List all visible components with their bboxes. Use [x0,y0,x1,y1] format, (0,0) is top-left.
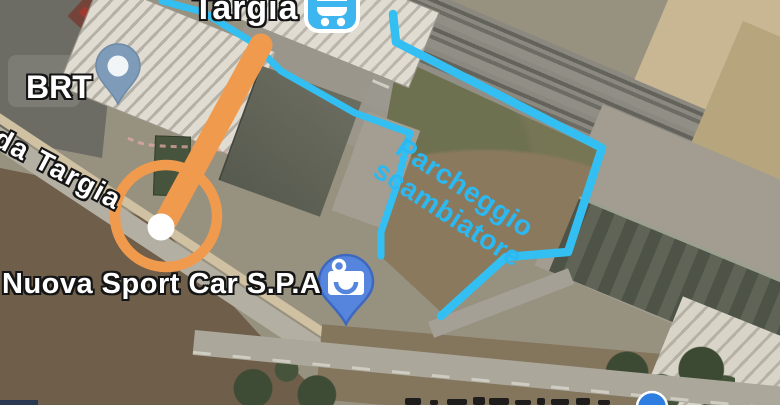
train-wheel [337,18,345,26]
satellite-map[interactable]: Targia BRT ada Targia Parcheggio scambia… [0,0,780,405]
brt-label: BRT [26,69,92,106]
clipped-circle-marker-icon[interactable] [637,392,667,405]
brt-pin-dot [108,56,129,77]
destination-pin-icon[interactable] [319,255,373,324]
clipped-bottom-left-shape [0,400,38,405]
clipped-bottom-label [405,397,610,405]
cyan-route-line [162,1,410,256]
station-label[interactable]: Targia [193,0,299,28]
business-label[interactable]: Nuova Sport Car S.P.A [2,268,321,301]
train-wheel [321,18,329,26]
brt-pin-icon[interactable] [96,44,140,104]
train-window-band [317,1,347,7]
route-endpoint-dot [148,214,175,241]
train-station-icon[interactable] [306,0,358,31]
